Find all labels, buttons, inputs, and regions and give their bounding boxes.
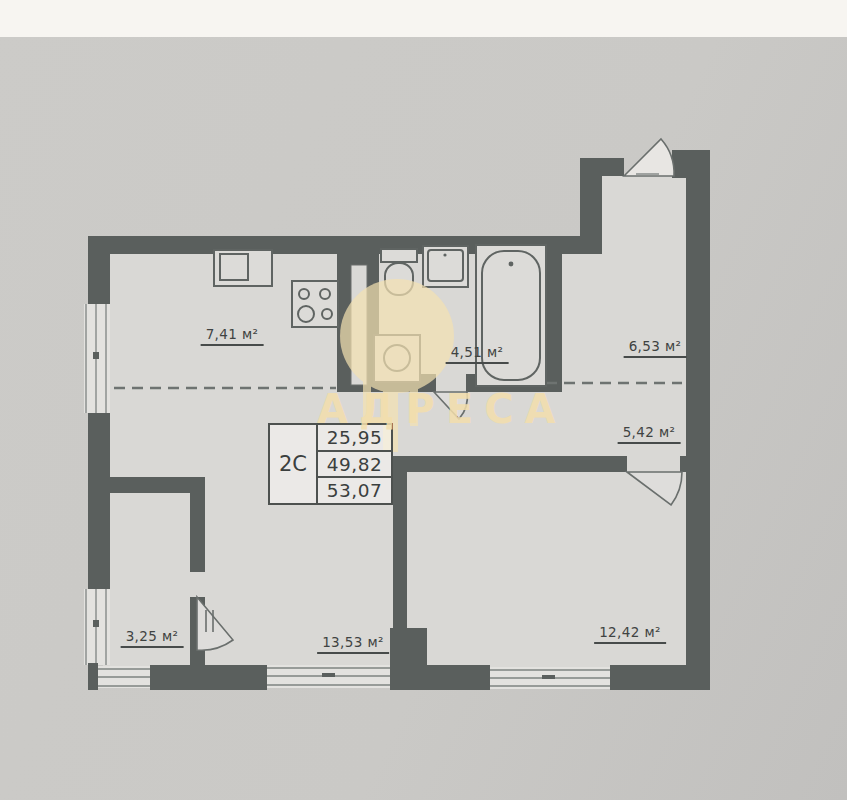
- apartment-info-box: 2С 25,95 49,82 53,07: [268, 423, 393, 505]
- wall-entrance-left: [580, 163, 602, 251]
- wall-left-mid: [88, 413, 110, 589]
- entrance-nook-interior: [600, 176, 686, 256]
- floorplan-photo: 7,41 м² 4,51 м² 6,53 м² 5,42 м² 3,25 м² …: [0, 0, 847, 800]
- wall-bottom-corner: [88, 663, 98, 690]
- wall-right-outer: [686, 150, 710, 690]
- room-area-label-kitchen: 7,41 м²: [201, 326, 264, 346]
- bathroom-sink-icon: [423, 246, 468, 287]
- wall-bedroom-top-right: [680, 456, 710, 472]
- wall-bedroom-left-pier: [390, 628, 427, 690]
- room-area-label-wardrobe: 5,42 м²: [618, 424, 681, 444]
- wall-storage-top: [88, 477, 205, 493]
- stove-icon: [292, 281, 338, 327]
- room-area-label-entrance-hall: 6,53 м²: [624, 338, 687, 358]
- window-left-lower: [84, 589, 110, 665]
- window-bedroom: [490, 667, 610, 689]
- wall-bedroom-top-left: [393, 456, 627, 472]
- window-bottom-corner: [98, 666, 150, 688]
- room-area-label-bathroom: 4,51 м²: [446, 344, 509, 364]
- wall-bottom-mid: [427, 665, 490, 690]
- info-value-3: 53,07: [318, 476, 391, 503]
- room-area-label-living-room: 13,53 м²: [317, 634, 389, 654]
- apartment-type-label: 2С: [270, 425, 318, 503]
- entrance-door-swing: [624, 139, 674, 176]
- room-area-label-bedroom: 12,42 м²: [594, 624, 666, 644]
- bathtub-icon: [476, 245, 546, 386]
- apartment-area-values: 25,95 49,82 53,07: [318, 425, 391, 503]
- wall-bottom-right: [610, 665, 710, 690]
- wall-bottom-left: [150, 665, 267, 690]
- window-left-upper: [84, 304, 110, 413]
- wall-left-top: [88, 236, 110, 304]
- wall-entrance-cap: [580, 158, 624, 176]
- watermark-text: АДРЕСА: [317, 386, 567, 432]
- room-area-label-storage: 3,25 м²: [121, 628, 184, 648]
- wall-storage-right-upper: [190, 477, 205, 572]
- info-value-2: 49,82: [318, 450, 391, 477]
- kitchen-sink-icon: [214, 250, 272, 286]
